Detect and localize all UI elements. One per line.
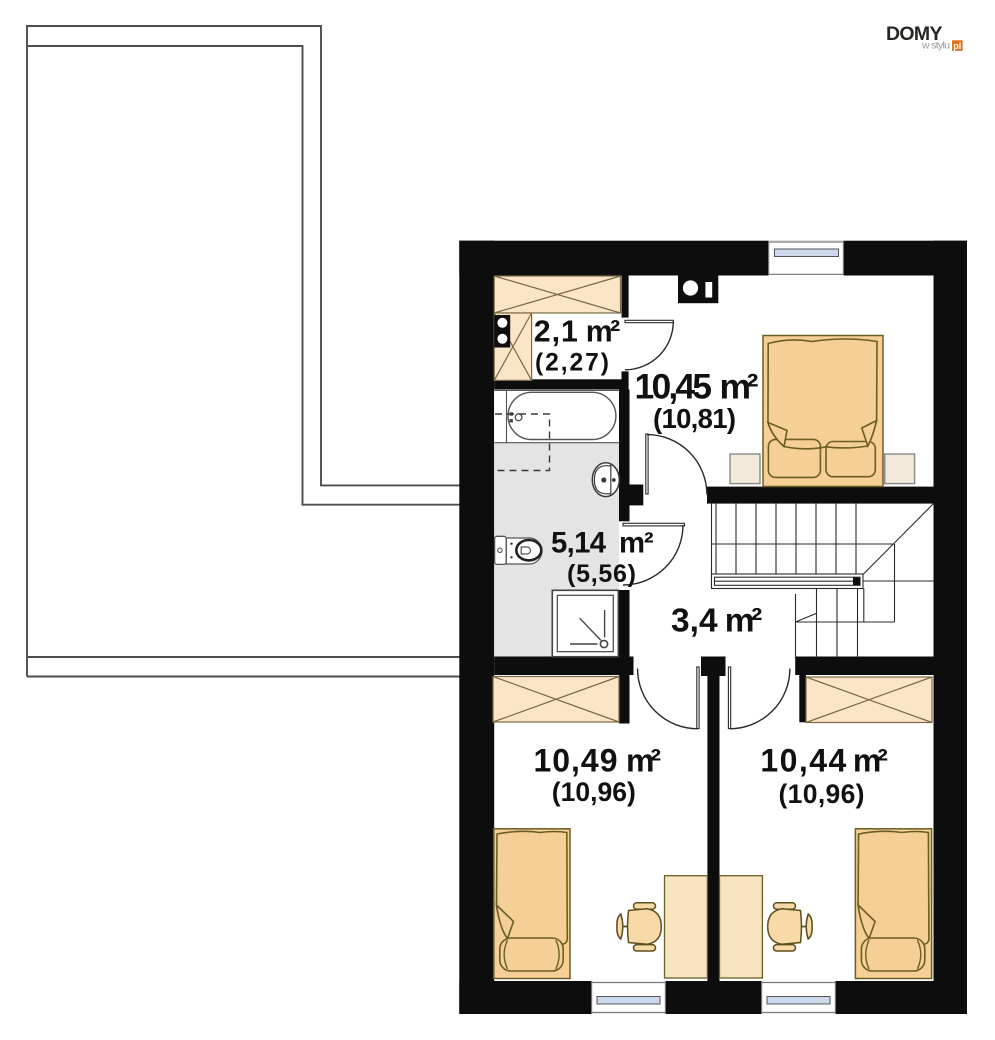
svg-text:m²: m² <box>853 742 888 778</box>
svg-text:w stylu: w stylu <box>921 40 950 52</box>
svg-text:10,49: 10,49 <box>534 742 618 778</box>
svg-text:(10,96): (10,96) <box>779 779 865 809</box>
svg-text:5,14: 5,14 <box>551 526 607 559</box>
svg-text:pl: pl <box>953 41 961 51</box>
svg-text:m²: m² <box>619 526 654 559</box>
svg-text:2,1: 2,1 <box>534 316 578 349</box>
svg-text:m²: m² <box>626 742 661 778</box>
svg-text:3,4: 3,4 <box>671 603 718 640</box>
svg-text:10,44: 10,44 <box>760 742 846 778</box>
svg-text:10,45: 10,45 <box>635 367 713 407</box>
svg-text:m²: m² <box>725 603 763 640</box>
svg-text:(5,56): (5,56) <box>567 560 636 588</box>
svg-text:m²: m² <box>586 316 621 349</box>
svg-text:(10,96): (10,96) <box>552 777 636 807</box>
svg-text:m²: m² <box>720 367 759 407</box>
svg-text:(2,27): (2,27) <box>535 350 609 377</box>
svg-text:(10,81): (10,81) <box>653 403 736 434</box>
